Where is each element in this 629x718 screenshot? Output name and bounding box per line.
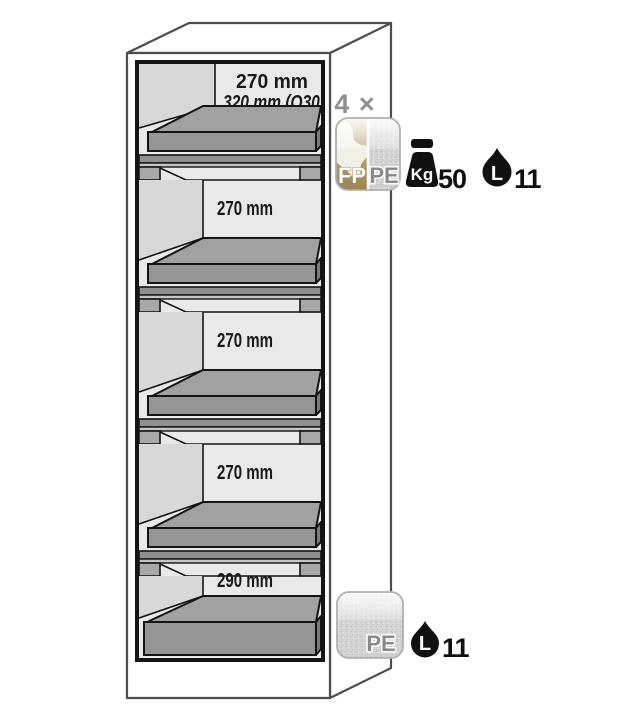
annotation-bottom: PE L 11 bbox=[337, 592, 470, 663]
pe-label-bottom: PE bbox=[366, 631, 395, 656]
safety-cabinet-diagram: 270 mm 320 mm (Q30) 270 mm bbox=[0, 0, 629, 718]
fp-pe-tray-badge-icon: FP PE bbox=[336, 118, 400, 190]
compartment-4-height-label: 270 mm bbox=[217, 462, 273, 484]
kg-unit-label: Kg bbox=[411, 165, 434, 184]
compartment-1-height-label: 270 mm bbox=[236, 71, 308, 93]
liter-unit-label-bottom: L bbox=[419, 633, 431, 655]
annotation-top: 4 × FP PE Kg 50 L 11 bbox=[334, 89, 541, 194]
quantity-label: 4 × bbox=[334, 89, 375, 119]
liter-unit-label: L bbox=[491, 163, 503, 185]
diagram-stage: 270 mm 320 mm (Q30) 270 mm bbox=[0, 0, 629, 718]
kg-weight-icon: Kg bbox=[406, 139, 438, 187]
pe-label: PE bbox=[369, 163, 398, 188]
pe-tray-badge-icon: PE bbox=[337, 592, 403, 658]
volume-value: 11 bbox=[514, 164, 542, 194]
volume-value-bottom: 11 bbox=[442, 633, 470, 663]
load-value: 50 bbox=[438, 164, 466, 194]
fp-label: FP bbox=[338, 163, 366, 188]
liquid-drop-icon-top: L bbox=[483, 148, 512, 187]
compartment-3-height-label: 270 mm bbox=[217, 330, 273, 352]
compartment-2-height-label: 270 mm bbox=[217, 198, 273, 220]
liquid-drop-icon-bottom: L bbox=[411, 621, 439, 658]
compartment-5-height-label: 290 mm bbox=[217, 570, 273, 592]
